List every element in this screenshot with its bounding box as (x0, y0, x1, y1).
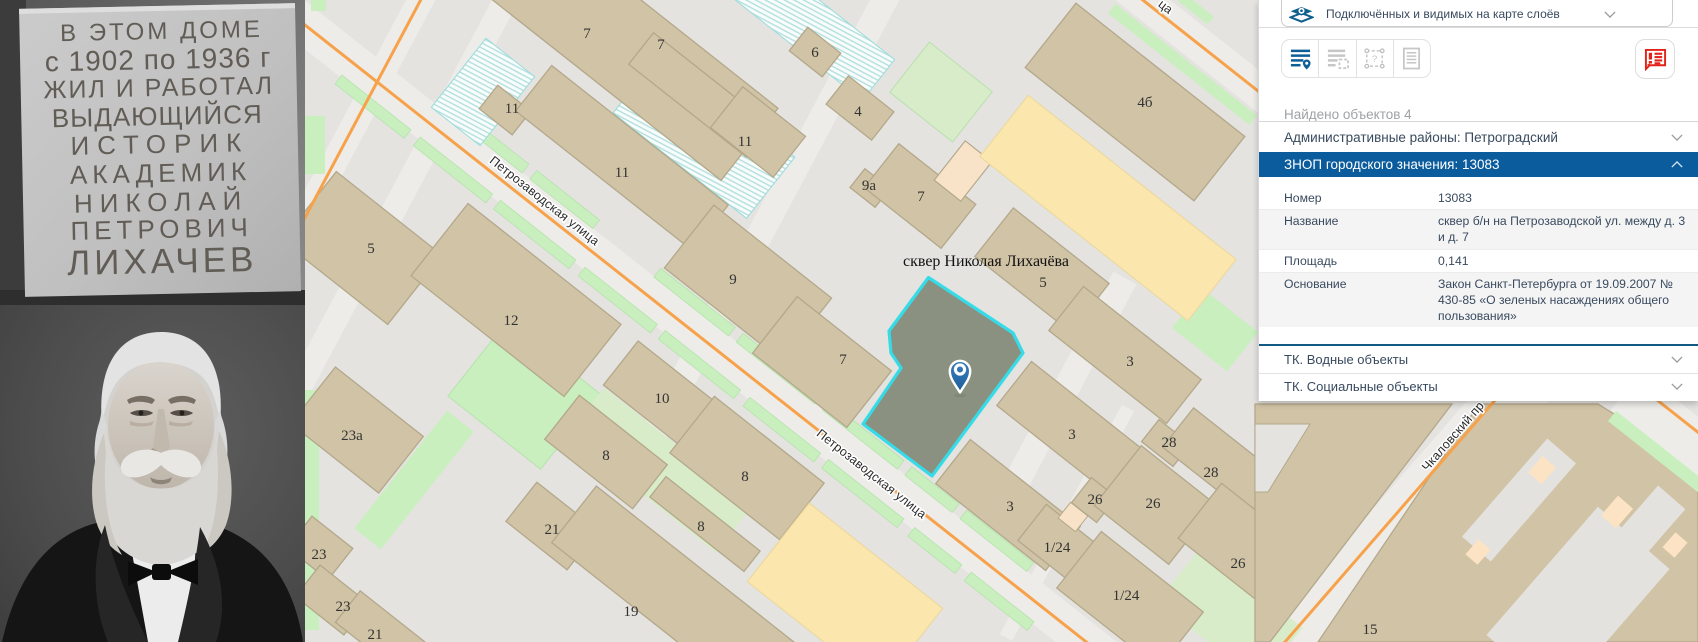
svg-text:21: 21 (368, 627, 383, 642)
svg-text:11: 11 (615, 165, 629, 181)
svg-text:сквер Николая Лихачёва: сквер Николая Лихачёва (903, 253, 1069, 270)
svg-text:4: 4 (854, 104, 862, 120)
svg-text:7: 7 (583, 26, 591, 42)
svg-text:7: 7 (917, 189, 925, 205)
svg-text:ЛИХАЧЕВ: ЛИХАЧЕВ (67, 240, 258, 283)
svg-text:28: 28 (1162, 435, 1177, 451)
svg-text:4б: 4б (1137, 95, 1153, 111)
svg-text:6: 6 (811, 45, 819, 61)
svg-text:3: 3 (1006, 499, 1014, 515)
svg-text:1/24: 1/24 (1113, 588, 1140, 604)
svg-text:15: 15 (1363, 622, 1378, 638)
svg-text:7: 7 (657, 37, 665, 53)
svg-text:8: 8 (741, 469, 749, 485)
svg-text:5: 5 (367, 241, 375, 257)
svg-text:11: 11 (738, 134, 752, 150)
svg-text:23а: 23а (341, 428, 363, 444)
svg-text:21: 21 (545, 522, 560, 538)
svg-text:26: 26 (1231, 556, 1247, 572)
svg-text:9а: 9а (862, 178, 877, 194)
svg-text:26: 26 (1088, 492, 1104, 508)
svg-text:1/24: 1/24 (1044, 540, 1071, 556)
svg-text:19: 19 (624, 604, 639, 620)
svg-text:5: 5 (1039, 275, 1047, 291)
svg-text:12: 12 (504, 313, 519, 329)
svg-text:8: 8 (602, 448, 610, 464)
svg-text:?: ? (1372, 54, 1377, 65)
svg-text:10: 10 (655, 391, 670, 407)
svg-text:9: 9 (729, 272, 737, 288)
svg-text:3: 3 (1068, 427, 1076, 443)
svg-text:3: 3 (1126, 354, 1134, 370)
svg-text:28: 28 (1204, 465, 1219, 481)
svg-text:26: 26 (1146, 496, 1162, 512)
svg-text:23: 23 (312, 547, 327, 563)
svg-text:11: 11 (505, 101, 519, 117)
svg-text:8: 8 (697, 519, 705, 535)
svg-text:7: 7 (839, 352, 847, 368)
svg-text:23: 23 (336, 599, 351, 615)
